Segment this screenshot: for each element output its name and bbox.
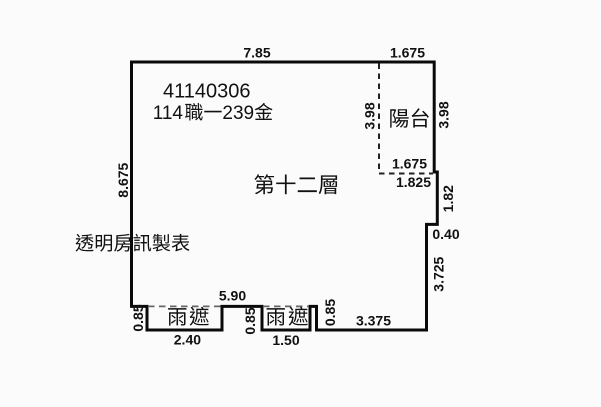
svg-text:2.40: 2.40 <box>174 332 201 348</box>
svg-text:5.90: 5.90 <box>219 287 246 303</box>
svg-text:1.82: 1.82 <box>440 185 456 212</box>
svg-text:1.675: 1.675 <box>390 45 425 61</box>
svg-text:7.85: 7.85 <box>243 45 270 61</box>
svg-text:3.98: 3.98 <box>361 102 377 129</box>
svg-text:3.725: 3.725 <box>430 256 446 291</box>
svg-text:0.85: 0.85 <box>242 307 258 334</box>
svg-text:8.675: 8.675 <box>115 162 131 197</box>
svg-text:3.98: 3.98 <box>436 101 452 128</box>
svg-text:1.825: 1.825 <box>396 174 431 190</box>
svg-text:114: 114 <box>153 103 184 124</box>
svg-text:0.85: 0.85 <box>130 304 146 331</box>
svg-text:41140306: 41140306 <box>163 81 251 103</box>
svg-text:1.50: 1.50 <box>272 332 299 348</box>
svg-text:3.375: 3.375 <box>356 313 391 329</box>
svg-text:239: 239 <box>222 103 254 124</box>
svg-text:1.675: 1.675 <box>392 156 427 172</box>
svg-text:0.85: 0.85 <box>322 299 338 326</box>
svg-text:0.40: 0.40 <box>432 226 459 242</box>
